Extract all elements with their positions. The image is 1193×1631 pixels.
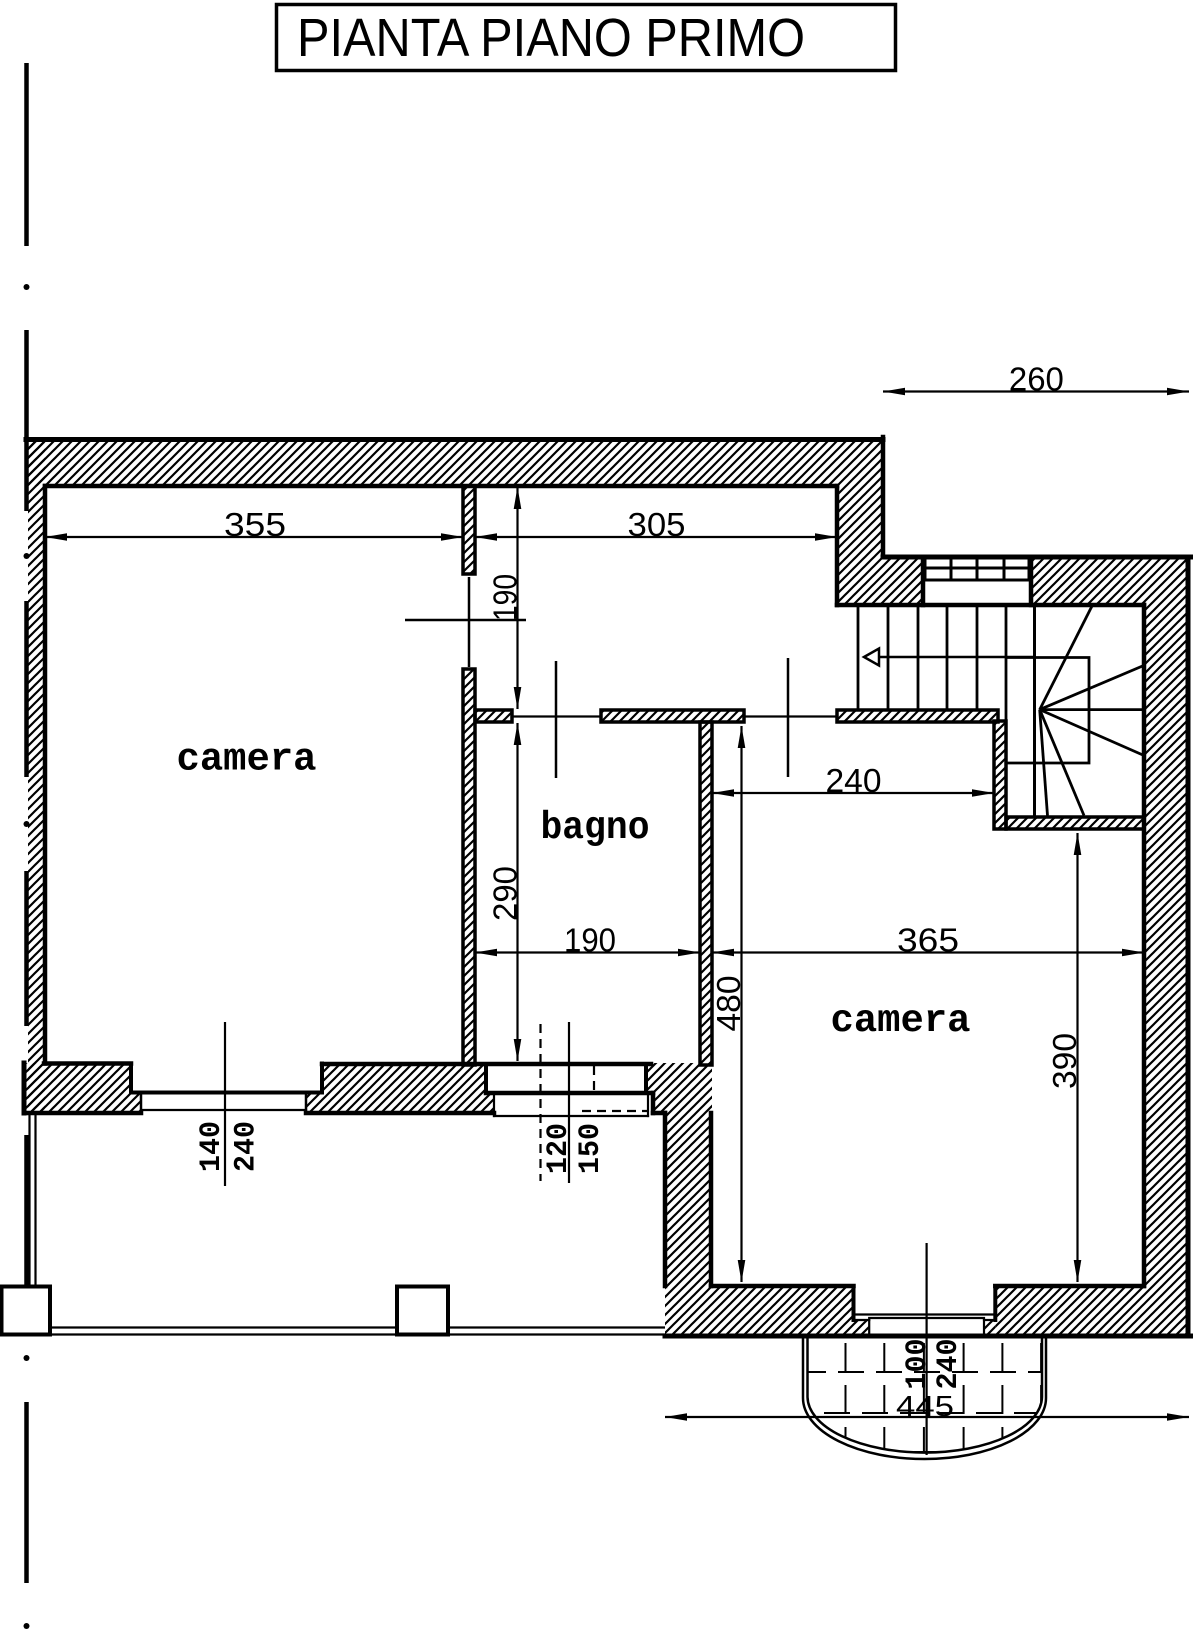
svg-text:camera: camera (177, 738, 317, 782)
svg-text:camera: camera (831, 999, 971, 1043)
svg-text:480: 480 (710, 976, 747, 1032)
svg-text:445: 445 (896, 1391, 954, 1423)
svg-text:355: 355 (224, 506, 286, 543)
svg-text:190: 190 (487, 574, 524, 621)
svg-text:bagno: bagno (541, 806, 650, 850)
svg-text:140: 140 (195, 1121, 229, 1172)
svg-text:100: 100 (901, 1339, 935, 1390)
svg-text:390: 390 (1046, 1033, 1083, 1089)
svg-text:150: 150 (574, 1123, 608, 1174)
svg-text:240: 240 (932, 1339, 966, 1390)
svg-text:PIANTA PIANO PRIMO: PIANTA PIANO PRIMO (297, 8, 805, 68)
svg-text:240: 240 (826, 762, 882, 799)
svg-text:290: 290 (487, 866, 524, 921)
svg-text:305: 305 (628, 506, 686, 543)
svg-text:190: 190 (564, 922, 616, 959)
svg-text:120: 120 (542, 1123, 576, 1174)
svg-text:240: 240 (230, 1121, 264, 1172)
svg-text:260: 260 (1009, 361, 1064, 398)
svg-text:365: 365 (897, 922, 959, 959)
